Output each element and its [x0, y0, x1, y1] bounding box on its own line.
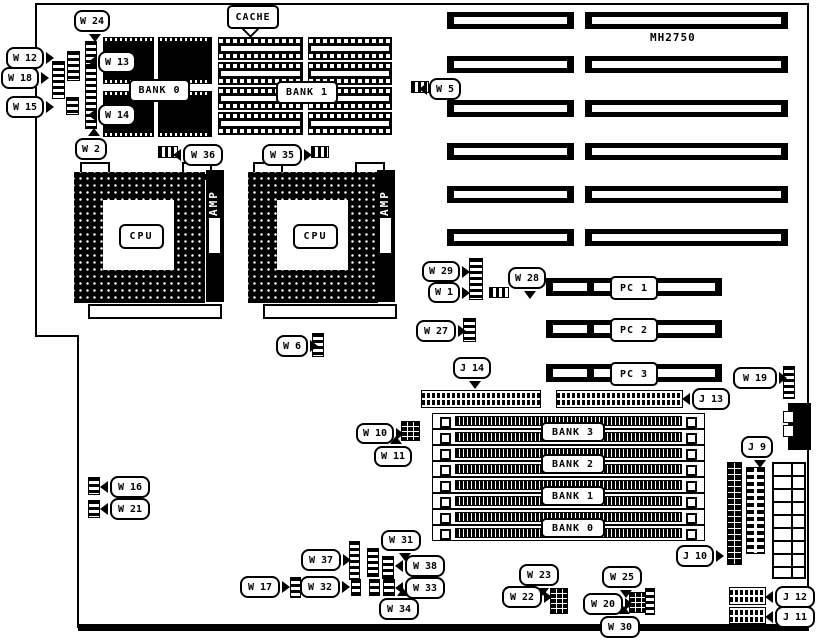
pci-slot-stripe: [649, 283, 715, 291]
jumper-w38: [382, 556, 394, 579]
callout-pointer: [88, 128, 100, 136]
callout-pointer: [41, 72, 49, 84]
simm-clip-left: [440, 417, 451, 428]
isa-slot: [447, 12, 574, 29]
simm-clip-right: [686, 513, 697, 524]
callout-text: W 17: [248, 582, 272, 593]
callout-w34: W 34: [379, 598, 419, 620]
callout-w38: W 38: [405, 555, 445, 577]
simm-clip-left: [440, 465, 451, 476]
callout-pointer: [618, 606, 630, 614]
callout-w14: W 14: [98, 104, 136, 126]
callout-text: W 10: [363, 428, 387, 439]
callout-text: W 31: [389, 535, 413, 546]
jumper-w34: [369, 579, 380, 596]
cpu-socket-1: CPU: [74, 172, 205, 303]
dram-chip: [158, 37, 212, 84]
simm-bank-label: BANK 0: [541, 518, 605, 538]
pci-slot-stripe: [553, 369, 587, 377]
callout-j11: J 11: [775, 606, 815, 628]
callout-pointer: [462, 266, 470, 278]
callout-text: W 18: [8, 73, 32, 84]
jumper-w30: [645, 588, 655, 615]
simm-clip-left: [440, 497, 451, 508]
callout-pointer: [343, 554, 351, 566]
connector-notch: [783, 411, 794, 423]
simm-clip-right: [686, 497, 697, 508]
pci-slot-label: PC 1: [610, 276, 658, 300]
callout-text: W 14: [105, 110, 129, 121]
pci-slot-stripe: [553, 283, 587, 291]
callout-j9: J 9: [741, 436, 773, 458]
callout-text: J 9: [748, 442, 766, 453]
isa-slot-stripe: [454, 17, 567, 24]
callout-text: J 13: [699, 394, 723, 405]
callout-text: W 38: [413, 561, 437, 572]
callout-w22: W 22: [502, 586, 542, 608]
callout-text: W 11: [381, 451, 405, 462]
isa-slot-stripe: [592, 17, 781, 24]
simm-clip-right: [686, 481, 697, 492]
isa-slot: [585, 186, 788, 203]
callout-pointer: [524, 291, 536, 299]
jumper-w21: [88, 500, 100, 518]
callout-w19: W 19: [733, 367, 777, 389]
simm-bank-label: BANK 2: [541, 454, 605, 474]
pin-header-j11: [729, 607, 766, 624]
isa-slot: [447, 100, 574, 117]
isa-slot: [447, 143, 574, 160]
isa-slot: [585, 56, 788, 73]
isa-slot: [585, 100, 788, 117]
simm-clip-right: [686, 433, 697, 444]
motherboard-diagram: MH2750 CACHE BANK 0 BANK 1 CPU AMP CPU A…: [0, 0, 816, 641]
callout-text: W 23: [527, 570, 551, 581]
simm-bank-label: BANK 3: [541, 422, 605, 442]
callout-text: W 21: [118, 504, 142, 515]
callout-pointer: [173, 149, 181, 161]
cache-chip-body: [221, 46, 300, 51]
callout-j13: J 13: [692, 388, 730, 410]
cache-chip: [308, 112, 392, 135]
jumper-w32: [351, 579, 361, 596]
callout-w15: W 15: [6, 96, 44, 118]
simm-clip-left: [440, 481, 451, 492]
callout-j10: J 10: [676, 545, 714, 567]
callout-text: W 20: [591, 599, 615, 610]
socket-base: [263, 304, 397, 319]
callout-w33: W 33: [405, 577, 445, 599]
callout-text: J 10: [683, 551, 707, 562]
isa-slot-stripe: [592, 61, 781, 68]
callout-text: W 30: [608, 622, 632, 633]
callout-pointer: [46, 52, 54, 64]
power-connector: [772, 462, 806, 579]
callout-text: W 12: [13, 53, 37, 64]
callout-w37: W 37: [301, 549, 341, 571]
simm-clip-right: [686, 465, 697, 476]
amp-window: [209, 218, 220, 253]
callout-j14: J 14: [453, 357, 491, 379]
pci-slot: PC 2: [546, 320, 722, 338]
jumper-w35: [311, 146, 329, 158]
callout-w16: W 16: [110, 476, 150, 498]
pin-header-j10: [727, 462, 742, 565]
amp-connector-1: AMP: [206, 170, 224, 302]
callout-text: W 19: [743, 373, 767, 384]
jumper-w33: [383, 579, 395, 596]
jumper-w16: [88, 477, 100, 495]
callout-w29: W 29: [422, 261, 460, 282]
isa-slot: [447, 229, 574, 246]
callout-pointer: [89, 34, 101, 42]
callout-text: W 2: [82, 144, 100, 155]
isa-slot: [585, 143, 788, 160]
jumper-w31: [367, 548, 379, 577]
pin-header-j14: [421, 390, 541, 408]
callout-pointer: [419, 83, 427, 95]
callout-text: J 12: [783, 592, 807, 603]
bank1-label: BANK 1: [276, 81, 338, 104]
isa-slot-stripe: [592, 105, 781, 112]
cache-chip-body: [311, 121, 389, 126]
callout-w17: W 17: [240, 576, 280, 598]
callout-w31: W 31: [381, 530, 421, 551]
pci-slot: PC 1: [546, 278, 722, 296]
callout-text: W 5: [436, 84, 454, 95]
isa-slot: [585, 12, 788, 29]
callout-text: W 35: [270, 150, 294, 161]
callout-w11: W 11: [374, 446, 412, 467]
callout-pointer: [88, 56, 96, 68]
pin-header-j13: [556, 390, 683, 408]
socket-base: [88, 304, 222, 319]
isa-slot-stripe: [454, 234, 567, 241]
cache-chip-body: [311, 46, 389, 51]
callout-pointer: [100, 481, 108, 493]
jumper-w12: [67, 51, 80, 81]
jumper-w15: [66, 97, 79, 115]
callout-text: W 25: [610, 572, 634, 583]
jumper-w18: [52, 61, 65, 99]
callout-text: W 22: [510, 592, 534, 603]
cache-chip-body: [221, 71, 300, 76]
callout-pointer: [304, 149, 312, 161]
cache-chip: [218, 37, 303, 60]
callout-pointer: [390, 436, 402, 444]
callout-pointer: [342, 581, 350, 593]
callout-w28: W 28: [508, 267, 546, 289]
callout-pointer: [458, 325, 466, 337]
callout-w13: W 13: [98, 51, 136, 73]
callout-text: J 11: [783, 612, 807, 623]
callout-w36: W 36: [183, 144, 223, 166]
callout-text: W 36: [191, 150, 215, 161]
cache-chip: [308, 37, 392, 60]
callout-pointer: [310, 340, 318, 352]
model-number: MH2750: [650, 31, 696, 44]
pci-slot-stripe: [553, 325, 587, 333]
callout-pointer: [765, 591, 773, 603]
callout-pointer: [779, 372, 787, 384]
callout-w10: W 10: [356, 423, 394, 444]
callout-pointer: [282, 581, 290, 593]
callout-w1: W 1: [428, 282, 460, 303]
callout-pointer: [100, 503, 108, 515]
callout-pointer: [682, 393, 690, 405]
isa-slot-stripe: [454, 105, 567, 112]
pin-header-j9: [746, 467, 765, 554]
amp-window: [380, 218, 391, 253]
callout-pointer: [395, 560, 403, 572]
callout-w12: W 12: [6, 47, 44, 69]
isa-slot-stripe: [592, 191, 781, 198]
callout-pointer: [765, 611, 773, 623]
simm-clip-left: [440, 529, 451, 540]
callout-text: W 34: [387, 604, 411, 615]
callout-text: W 29: [429, 266, 453, 277]
callout-w2: W 2: [75, 138, 107, 160]
jumper-w22-w23: [550, 588, 568, 614]
callout-text: W 24: [80, 16, 104, 27]
pci-slot-stripe: [649, 369, 715, 377]
callout-text: W 6: [283, 341, 301, 352]
callout-w30: W 30: [600, 616, 640, 638]
cache-chip-body: [221, 121, 300, 126]
callout-text: W 28: [515, 273, 539, 284]
amp-connector-2: AMP: [377, 170, 395, 302]
callout-text: W 27: [424, 326, 448, 337]
isa-slot-stripe: [454, 148, 567, 155]
isa-slot-stripe: [592, 148, 781, 155]
cache-chip: [218, 112, 303, 135]
simm-bank-label: BANK 1: [541, 486, 605, 506]
callout-pointer: [88, 109, 96, 121]
callout-w32: W 32: [300, 576, 340, 598]
callout-text: W 37: [309, 555, 333, 566]
callout-pointer: [716, 550, 724, 562]
callout-j12: J 12: [775, 586, 815, 608]
callout-text: W 32: [308, 582, 332, 593]
callout-w35: W 35: [262, 144, 302, 166]
isa-slot-stripe: [592, 234, 781, 241]
callout-text: W 15: [13, 102, 37, 113]
callout-pointer: [46, 101, 54, 113]
pin-header-j12: [729, 587, 766, 605]
jumper-w29-w1: [469, 258, 483, 300]
pci-slot-label: PC 2: [610, 318, 658, 342]
isa-slot-stripe: [454, 61, 567, 68]
callout-text: W 16: [118, 482, 142, 493]
callout-w21: W 21: [110, 498, 150, 520]
pci-slot-label: PC 3: [610, 362, 658, 386]
isa-slot: [585, 229, 788, 246]
bank0-label: BANK 0: [129, 79, 190, 102]
pci-slot: PC 3: [546, 364, 722, 382]
simm-clip-left: [440, 449, 451, 460]
callout-pointer: [469, 381, 481, 389]
pci-slot-stripe: [649, 325, 715, 333]
callout-text: W 33: [413, 583, 437, 594]
callout-pointer: [462, 287, 470, 299]
callout-w23: W 23: [519, 564, 559, 586]
isa-slot-stripe: [454, 191, 567, 198]
jumper-w28: [489, 287, 509, 298]
callout-w6: W 6: [276, 335, 308, 357]
cpu-label: CPU: [119, 224, 164, 249]
cache-label: CACHE: [227, 5, 279, 29]
callout-text: W 1: [435, 287, 453, 298]
callout-pointer: [397, 588, 409, 596]
callout-pointer: [544, 591, 552, 603]
simm-clip-left: [440, 433, 451, 444]
connector-notch: [783, 425, 794, 437]
callout-w25: W 25: [602, 566, 642, 588]
isa-slot: [447, 186, 574, 203]
cpu-label: CPU: [293, 224, 338, 249]
simm-clip-right: [686, 529, 697, 540]
simm-clip-right: [686, 417, 697, 428]
callout-w18: W 18: [1, 67, 39, 89]
simm-clip-right: [686, 449, 697, 460]
callout-w24: W 24: [74, 10, 110, 32]
cpu-socket-2: CPU: [248, 172, 378, 303]
isa-slot: [447, 56, 574, 73]
callout-w5: W 5: [429, 78, 461, 100]
callout-text: W 13: [105, 57, 129, 68]
cache-chip-body: [311, 71, 389, 76]
callout-text: J 14: [460, 363, 484, 374]
callout-w27: W 27: [416, 320, 456, 342]
simm-clip-left: [440, 513, 451, 524]
callout-pointer: [754, 460, 766, 468]
